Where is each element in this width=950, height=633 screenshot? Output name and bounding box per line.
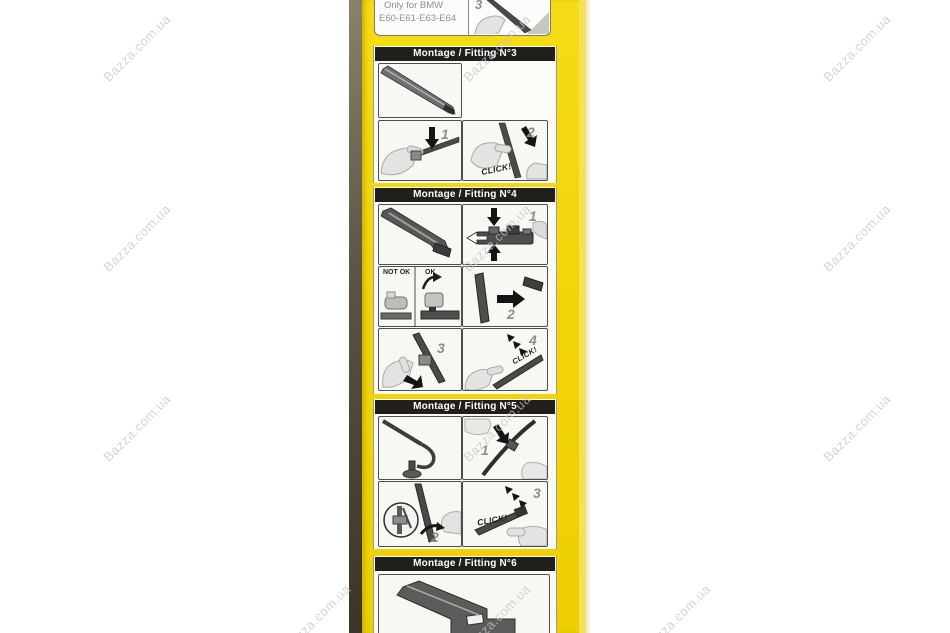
bracket-hole xyxy=(467,614,484,625)
watermark-tile: Bazza.com.ua xyxy=(100,11,173,84)
triangle-marker xyxy=(513,341,521,349)
rail2-bump xyxy=(429,307,436,312)
arm-slot-highlight xyxy=(389,213,437,243)
rail xyxy=(381,313,411,319)
wiper-blade-shape xyxy=(475,273,489,323)
panel-not-ok-ok: NOT OK OK xyxy=(378,266,462,327)
hand-shape xyxy=(533,221,547,239)
step-number: 1 xyxy=(481,443,489,457)
watermark-tile: Bazza.com.ua xyxy=(100,201,173,274)
panel-fitting3-step2: 2 CLICK! xyxy=(462,120,548,181)
watermark-tile: Bazza.com.ua xyxy=(280,581,353,633)
instruction-card-fitting5: Montage / Fitting N°5 1 xyxy=(373,399,557,549)
panel-fitting5-step1: 1 xyxy=(462,416,548,480)
panel-fitting4-step1: 1 xyxy=(462,204,548,265)
down-right-arrow-icon xyxy=(493,424,509,444)
finger-shape xyxy=(487,365,504,375)
corner-wedge xyxy=(527,12,549,34)
panel-fitting5-step2: 2 xyxy=(378,481,462,547)
panel-fitting4-step2: 2 xyxy=(462,266,548,327)
connector-wrong xyxy=(385,297,407,309)
end-cap xyxy=(523,277,543,291)
panel-hook-arm xyxy=(378,416,462,480)
slide-in-illustration xyxy=(463,267,547,326)
watermark-tile: Bazza.com.ua xyxy=(820,11,893,84)
watermark-tile: Bazza.com.ua xyxy=(820,201,893,274)
step-number: 2 xyxy=(527,125,535,139)
step-number: 3 xyxy=(533,486,541,500)
panel-blade-overview xyxy=(378,63,462,118)
not-ok-label: NOT OK xyxy=(383,269,410,277)
section-header-fitting5: Montage / Fitting N°5 xyxy=(375,400,555,414)
press-illustration xyxy=(379,329,461,390)
panel-fitting4-step4: 4 CLICK! xyxy=(462,328,548,391)
ok-label: OK xyxy=(425,269,436,277)
panel-bracket-adapter xyxy=(378,574,550,633)
magnifier-illustration xyxy=(379,482,461,546)
hook-shape xyxy=(417,444,434,467)
blade-highlight xyxy=(385,69,451,109)
hand-shape xyxy=(475,16,505,34)
section-header-fitting4: Montage / Fitting N°4 xyxy=(375,188,555,202)
triangle-marker xyxy=(505,486,513,494)
watermark-tile: Bazza.com.ua xyxy=(820,391,893,464)
rail2 xyxy=(421,311,459,319)
step-number: 3 xyxy=(437,341,445,355)
arm-end-illustration xyxy=(379,205,461,264)
triangle-marker xyxy=(507,334,515,342)
panel-fitting5-step3: 3 CLICK! xyxy=(462,481,548,547)
blade-clip xyxy=(411,151,421,160)
wiper-arm-shape xyxy=(383,421,421,444)
triangle-marker xyxy=(512,493,520,501)
hand-shape-lower xyxy=(527,163,547,179)
pivot-foot xyxy=(403,470,421,478)
blade-clip xyxy=(419,355,431,365)
up-arrow-icon xyxy=(487,244,501,261)
panel-arm-end xyxy=(378,204,462,265)
panel-bmw-note: Only for BMW E60-E61-E63-E64 3 xyxy=(374,0,551,36)
panel-fitting3-step1: 1 xyxy=(378,120,462,181)
up-right-arrow-icon xyxy=(403,375,423,389)
bracket-adapter-illustration xyxy=(379,575,549,633)
adapter-bump2 xyxy=(523,229,531,234)
hand-shape xyxy=(465,419,491,435)
section-header-fitting6: Montage / Fitting N°6 xyxy=(375,557,555,571)
instruction-card-fitting6: Montage / Fitting N°6 xyxy=(373,556,557,633)
hand-shape xyxy=(441,512,461,534)
bmw-note-line2: E60-E61-E63-E64 xyxy=(379,13,456,25)
flat-blade-illustration xyxy=(379,64,461,117)
step-number: 1 xyxy=(529,209,537,223)
down-arrow-icon xyxy=(487,208,501,226)
watermark-tile: Bazza.com.ua xyxy=(100,391,173,464)
box-right-edge-highlight xyxy=(579,0,586,633)
box-right-edge-fade xyxy=(586,0,592,633)
adapter-latch xyxy=(507,226,519,234)
watermark-tile: Bazza.com.ua xyxy=(640,581,713,633)
hand-shape-lower xyxy=(522,463,547,480)
instruction-card-fitting3: Montage / Fitting N°3 1 xyxy=(373,46,557,183)
box-left-edge xyxy=(349,0,363,633)
step-number: 1 xyxy=(441,127,449,141)
connector-right xyxy=(425,293,443,307)
bmw-note-line1: Only for BMW xyxy=(384,0,443,12)
panel-fitting4-step3: 3 xyxy=(378,328,462,391)
adapter-bump xyxy=(489,227,499,234)
hand-blade-illustration xyxy=(469,0,549,34)
finger-shape xyxy=(507,528,525,536)
section-header-fitting3: Montage / Fitting N°3 xyxy=(375,47,555,61)
instruction-card-fitting4: Montage / Fitting N°4 1 xyxy=(373,187,557,394)
hook-arm-illustration xyxy=(379,417,461,479)
arm-tip xyxy=(433,243,451,257)
product-photo: Only for BMW E60-E61-E63-E64 3 Montage /… xyxy=(0,0,950,633)
step-number: 2 xyxy=(431,530,439,544)
hook-insert-illustration xyxy=(463,417,547,479)
connector-tab xyxy=(387,292,395,298)
adapter-detail xyxy=(393,516,407,524)
step-number: 2 xyxy=(507,307,515,321)
